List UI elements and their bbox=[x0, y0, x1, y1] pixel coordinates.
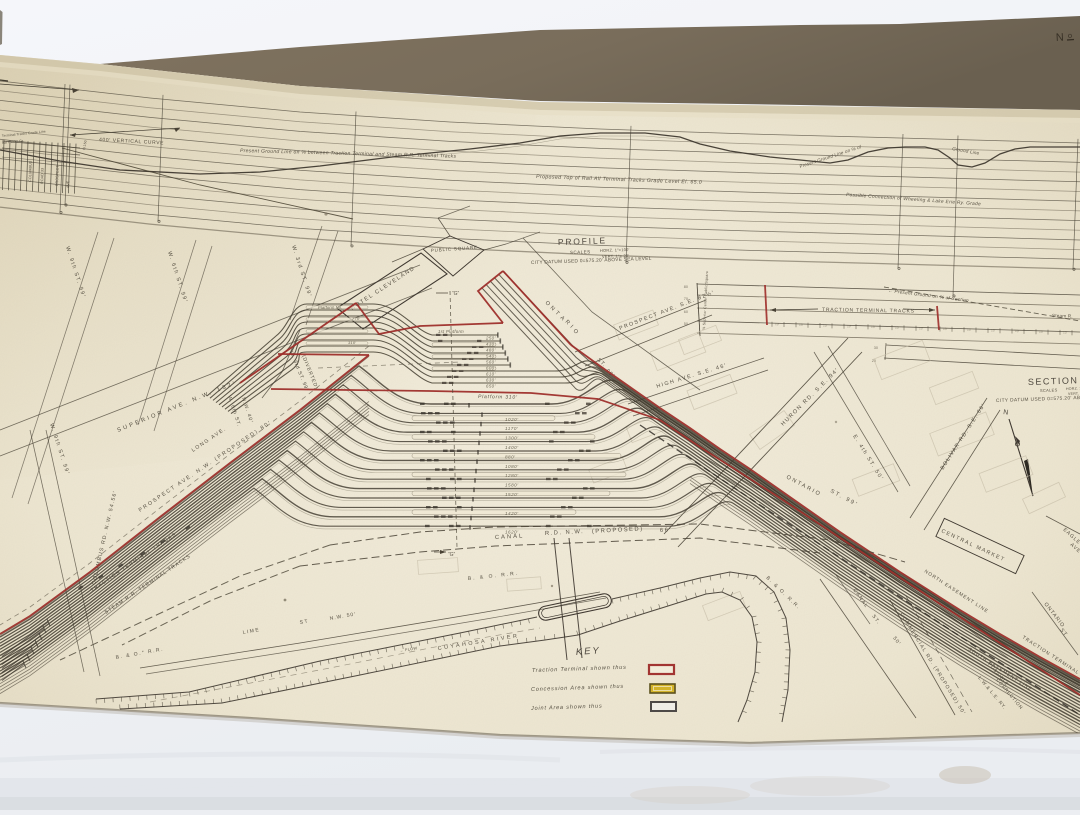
svg-text:600′: 600′ bbox=[486, 366, 496, 371]
svg-text:13′: 13′ bbox=[967, 328, 972, 332]
svg-text:1280′: 1280′ bbox=[505, 473, 519, 478]
svg-text:PROSPECT: PROSPECT bbox=[55, 165, 60, 186]
svg-text:13′: 13′ bbox=[847, 324, 852, 328]
svg-text:13′: 13′ bbox=[871, 325, 876, 329]
svg-text:Steam R.: Steam R. bbox=[1052, 313, 1073, 319]
svg-text:430′: 430′ bbox=[486, 342, 496, 347]
svg-text:13′: 13′ bbox=[799, 323, 804, 327]
svg-text:60: 60 bbox=[684, 310, 688, 314]
svg-text:COLUMBUS: COLUMBUS bbox=[28, 160, 33, 182]
svg-text:PROFILE: PROFILE bbox=[558, 235, 607, 247]
svg-text:Platform No.: Platform No. bbox=[318, 305, 343, 310]
svg-text:1080′: 1080′ bbox=[505, 464, 519, 469]
svg-text:650′: 650′ bbox=[486, 384, 496, 389]
svg-text:N: N bbox=[1003, 409, 1009, 417]
svg-text:880′: 880′ bbox=[505, 454, 516, 459]
svg-text:80: 80 bbox=[684, 285, 688, 289]
svg-text:13′: 13′ bbox=[775, 322, 780, 326]
svg-text:770′: 770′ bbox=[352, 316, 360, 321]
svg-text:1170′: 1170′ bbox=[505, 426, 518, 431]
svg-text:HORZ. 1″=100′: HORZ. 1″=100′ bbox=[600, 247, 630, 253]
svg-text:13′: 13′ bbox=[991, 328, 996, 332]
svg-text:13′: 13′ bbox=[895, 326, 900, 330]
svg-text:13′: 13′ bbox=[1039, 330, 1044, 334]
svg-text:560′: 560′ bbox=[486, 360, 496, 365]
svg-text:N: N bbox=[1056, 32, 1065, 44]
svg-text:“G”: “G” bbox=[452, 291, 460, 297]
svg-text:o: o bbox=[1068, 31, 1073, 40]
svg-text:480′: 480′ bbox=[486, 348, 496, 353]
svg-text:1420′: 1420′ bbox=[505, 511, 519, 516]
svg-text:SCALES: SCALES bbox=[570, 249, 591, 255]
svg-text:HORZ. 1″=40′: HORZ. 1″=40′ bbox=[1066, 386, 1080, 391]
svg-text:1020′: 1020′ bbox=[505, 417, 519, 422]
svg-text:66′: 66′ bbox=[660, 527, 672, 534]
svg-text:540′: 540′ bbox=[486, 354, 496, 359]
svg-text:AVE: AVE bbox=[66, 180, 70, 188]
svg-text:“G”: “G” bbox=[448, 552, 456, 558]
svg-text:SCALES: SCALES bbox=[1040, 387, 1058, 393]
svg-text:13′: 13′ bbox=[943, 327, 948, 331]
svg-text:13′: 13′ bbox=[1015, 329, 1020, 333]
svg-text:1580′: 1580′ bbox=[505, 483, 519, 488]
svg-text:Platform 310′: Platform 310′ bbox=[478, 394, 518, 401]
svg-text:310′: 310′ bbox=[348, 340, 356, 345]
svg-text:KEY: KEY bbox=[575, 645, 601, 658]
svg-text:610′: 610′ bbox=[486, 372, 496, 377]
svg-text:SECTION “G-G”: SECTION “G-G” bbox=[1028, 374, 1080, 387]
svg-text:13′: 13′ bbox=[823, 324, 828, 328]
svg-text:1400′: 1400′ bbox=[505, 445, 519, 450]
svg-text:30: 30 bbox=[874, 346, 878, 350]
svg-text:ROAD 33: ROAD 33 bbox=[40, 168, 45, 184]
svg-text:13′: 13′ bbox=[919, 326, 924, 330]
svg-text:1300′: 1300′ bbox=[505, 436, 519, 441]
svg-text:630′: 630′ bbox=[486, 378, 496, 383]
svg-text:13′: 13′ bbox=[1063, 330, 1068, 334]
svg-text:1520′: 1520′ bbox=[505, 492, 519, 497]
svg-text:250′: 250′ bbox=[485, 336, 496, 341]
